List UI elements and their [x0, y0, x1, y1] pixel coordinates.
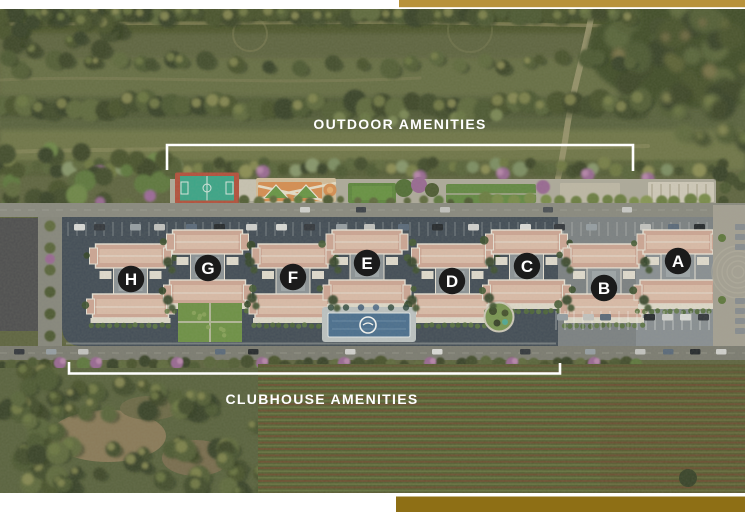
svg-text:CLUBHOUSE AMENITIES: CLUBHOUSE AMENITIES — [226, 391, 419, 407]
svg-text:D: D — [446, 272, 458, 291]
svg-text:B: B — [598, 279, 610, 298]
svg-text:G: G — [201, 259, 214, 278]
svg-text:E: E — [361, 254, 372, 273]
svg-text:H: H — [125, 270, 137, 289]
svg-text:C: C — [521, 257, 533, 276]
svg-text:A: A — [672, 252, 684, 271]
svg-text:OUTDOOR AMENITIES: OUTDOOR AMENITIES — [313, 116, 486, 132]
svg-text:F: F — [288, 268, 298, 287]
